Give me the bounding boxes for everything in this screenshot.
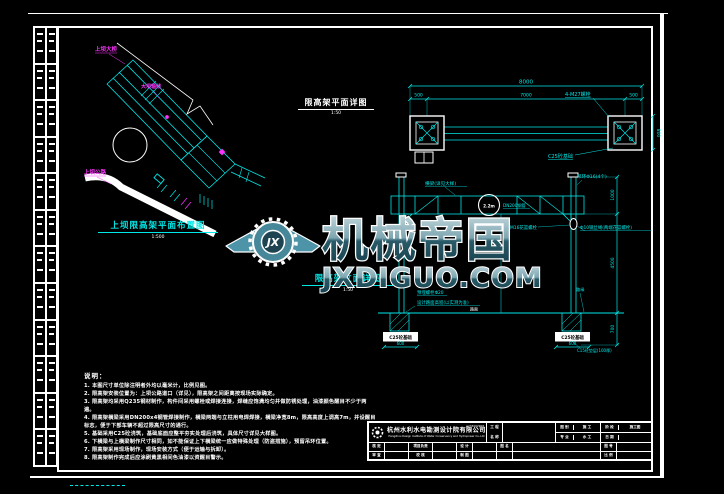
design-value [473, 443, 497, 451]
footings [382, 313, 591, 349]
pm-label: 项目负责 [409, 443, 433, 451]
notes-heading: 说明： [84, 370, 376, 380]
scale-label: 比 例 [601, 452, 617, 460]
label-dam-axis: 大坝轴线 [141, 83, 161, 90]
margin-strip-row [35, 394, 56, 431]
label-base: C25砼基础 [548, 153, 573, 160]
margin-strip-cell [35, 174, 47, 209]
margin-strip-cell [47, 101, 57, 136]
margin-strip-row [35, 321, 56, 358]
approve-label: 核 定 [369, 443, 385, 451]
major-value: 水 工 [574, 435, 600, 440]
dim-footing-right: 600 [569, 341, 577, 346]
type-value: 施 工 [574, 425, 600, 430]
margin-strip-row [35, 247, 56, 284]
margin-strip-cell [47, 394, 57, 429]
label-dam-road: 上坝公路 [84, 168, 107, 176]
date-label: 日 期 [601, 435, 619, 440]
margin-strip-cell [47, 138, 57, 173]
watermark-gear-icon: JX [250, 219, 296, 265]
dam-outline-lines [107, 60, 265, 188]
note-line: 5. 基础采用C25砼浇筑，基础底面应整平夯实处理后浇筑，具体尺寸详见大样图。 [84, 430, 376, 438]
label-wire: Φ10钢丝绳(两端花篮螺栓) [580, 224, 632, 231]
label-pad: C15砼垫层(100厚) [577, 347, 612, 353]
margin-strip-cell [35, 430, 47, 465]
label-footing-right: C25砼基础 [561, 334, 584, 341]
margin-strip-row [35, 65, 56, 102]
title-block-header: 杭州水利水电勘测设计院有限公司 Hangzhou Design Institut… [369, 423, 651, 443]
company-logo-gear-icon [371, 426, 384, 439]
margin-strip-cell [47, 321, 57, 356]
margin-strip-cell [35, 357, 47, 392]
name-cont-value [513, 452, 601, 460]
project-label-1: 工 程 [490, 423, 498, 433]
dim-overall: 8000 [519, 80, 533, 86]
note-line: 8. 限高架制作完成后应涂刷黄黑相间色油漆以资醒目警示。 [84, 454, 376, 462]
plan-detail-drawing: 8000 500 7000 500 800 4-M27螺栓 C25砼基础 [395, 70, 665, 165]
margin-strip-cell [47, 211, 57, 246]
project-label-2: 名 称 [490, 433, 498, 443]
dim-left: 500 [414, 93, 423, 99]
plan-detail-title: 限高架平面详图 [298, 97, 374, 110]
site-plan-scale: 1:500 [98, 235, 218, 240]
design-label: 设 计 [457, 443, 473, 451]
margin-strip-row [35, 284, 56, 321]
margin-strip-cell [35, 247, 47, 282]
stage-date-cell: 阶 段 施工图 日 期 [601, 423, 651, 442]
watermark-brand-cn: 机械帝国 [322, 213, 514, 267]
review-label: 审 查 [369, 452, 385, 460]
margin-strip-row [35, 101, 56, 138]
review-value [385, 452, 409, 460]
dim-side: 800 [655, 129, 661, 138]
label-hook: 吊环Φ16(4个) [577, 174, 607, 180]
margin-strip-cell [47, 247, 57, 282]
company-cert-no: A233002968 [466, 424, 484, 428]
margin-strip-cell [35, 65, 47, 100]
survey-marks-magenta [84, 53, 225, 209]
check-value [433, 452, 457, 460]
dim-top: 1000 [610, 189, 616, 200]
margin-strip-cell [47, 174, 57, 209]
cad-drawing-canvas: 上坝大桥 大坝轴线 上坝公路 上坝限高架平面布置图 1:500 限高架平面详图 … [0, 0, 724, 494]
drawing-name-label: 图 名 [497, 443, 513, 451]
name-cont-cell [497, 452, 513, 460]
project-label-cell: 工 程 名 称 [487, 423, 503, 442]
label-footing-left: C25砼基础 [389, 334, 412, 341]
margin-strip-row [35, 28, 56, 65]
sheet-top-edge [28, 13, 668, 14]
margin-strip-cell [35, 211, 47, 246]
margin-strip-cell [35, 321, 47, 356]
column-base-plates [410, 116, 642, 163]
margin-strip-cell [47, 28, 57, 63]
margin-strip-cell [47, 284, 57, 319]
label-curb: 路缘 [576, 286, 585, 293]
margin-strip-row [35, 430, 56, 465]
sheet-bottom-edge [30, 476, 664, 478]
pm-value [433, 443, 457, 451]
note-line: 3. 限高架均采用Q235钢材制作，构件间采用螺栓或焊接连接，焊缝应饱满均匀并做… [84, 398, 376, 414]
drawing-no-label: 图 号 [601, 443, 617, 451]
check-label: 校 核 [409, 452, 433, 460]
drawing-type-cell: 图 别 施 工 专 业 水 工 [556, 423, 601, 442]
dim-mid: 7000 [520, 93, 532, 99]
note-line: 2. 限高架安装位置为：上坝公路道口（详见），限高架之间距离按现场实际确定。 [84, 390, 376, 398]
dim-clear: 4500 [610, 257, 616, 268]
company-name-en: Hangzhou Design Institute of Water Conse… [387, 435, 486, 439]
draft-value [473, 452, 497, 460]
label-bolts: 4-M27螺栓 [565, 91, 591, 98]
drawing-name-value [513, 443, 601, 451]
note-line: 6. 下横梁与上横梁制作尺寸相同，如不能保证上下横梁统一应做特殊处理（防盗措施）… [84, 438, 376, 446]
note-line: 1. 本图尺寸单位除注明者外均以毫米计，比例见图。 [84, 382, 376, 390]
approve-value [385, 443, 409, 451]
margin-strip-row [35, 357, 56, 394]
dim-footing-left: 600 [397, 341, 405, 346]
margin-strip-row [35, 211, 56, 248]
title-block: 杭州水利水电勘测设计院有限公司 Hangzhou Design Institut… [367, 421, 653, 461]
margin-strip-row [35, 174, 56, 211]
type-label: 图 别 [556, 425, 574, 430]
note-line: 4. 限高架横梁采用DN200x4钢管焊接制作，横梁两端与立柱用电焊焊接，横梁净… [84, 414, 376, 430]
note-line: 7. 限高架采用现场制作，现场安装方式（便于运输与拆卸）。 [84, 446, 376, 454]
margin-strip-cell [35, 138, 47, 173]
margin-strip [33, 26, 58, 467]
plan-detail-scale: 1:50 [298, 111, 374, 116]
margin-strip-cell [47, 65, 57, 100]
draft-label: 制 图 [457, 452, 473, 460]
margin-strip-cell [47, 357, 57, 392]
scale-value [617, 452, 651, 460]
project-value-cell [503, 423, 556, 442]
label-road-level: 设计路面高程(以实测为准) [417, 299, 469, 306]
margin-strip-row [35, 138, 56, 175]
drawing-no-value [617, 443, 651, 451]
label-road-surface: 路面 [470, 306, 478, 312]
margin-strip-cell [35, 394, 47, 429]
dim-embed: 700 [610, 325, 616, 334]
watermark-logo-text: JX [265, 236, 280, 249]
dim-right: 500 [629, 93, 638, 99]
fold-mark-dashes [70, 485, 125, 486]
label-dam-bridge: 上坝大桥 [95, 45, 118, 53]
margin-strip-cell [35, 28, 47, 63]
road-centerlines-white [85, 43, 215, 234]
notes-block: 说明： 1. 本图尺寸单位除注明者外均以毫米计，比例见图。 2. 限高架安装位置… [84, 370, 376, 462]
title-block-signatures: 核 定 项目负责 设 计 图 名 图 号 审 查 校 核 制 图 [369, 443, 651, 459]
label-beam: 横梁(详见大样) [425, 180, 456, 187]
company-cell: 杭州水利水电勘测设计院有限公司 Hangzhou Design Institut… [369, 423, 487, 442]
margin-strip-cell [47, 430, 57, 465]
gantry-location-marker [154, 174, 212, 209]
margin-strip-cell [35, 284, 47, 319]
stage-value: 施工图 [619, 425, 651, 430]
site-plan-title: 上坝限高架平面布置图 [98, 219, 218, 233]
major-label: 专 业 [556, 435, 574, 440]
stage-label: 阶 段 [601, 425, 619, 430]
margin-strip-cell [35, 101, 47, 136]
watermark: JX 机械帝国 JXDIGUO.COM [222, 196, 556, 294]
watermark-brand-domain: JXDIGUO.COM [320, 263, 543, 294]
anchor-bolts [416, 98, 636, 155]
